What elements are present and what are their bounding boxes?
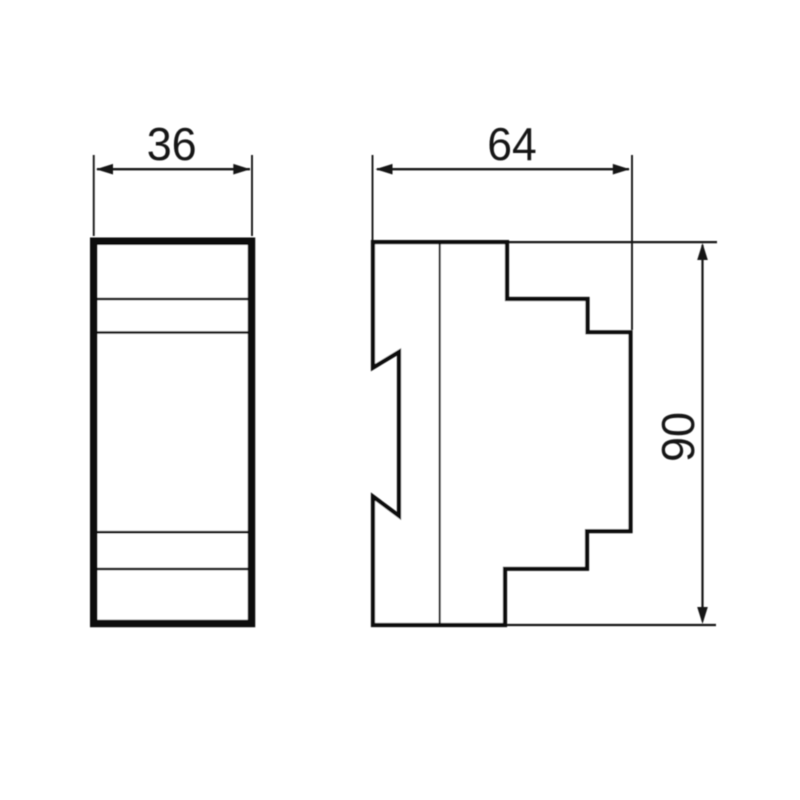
svg-text:36: 36	[147, 118, 197, 170]
svg-text:64: 64	[487, 118, 537, 170]
svg-text:90: 90	[652, 412, 704, 462]
